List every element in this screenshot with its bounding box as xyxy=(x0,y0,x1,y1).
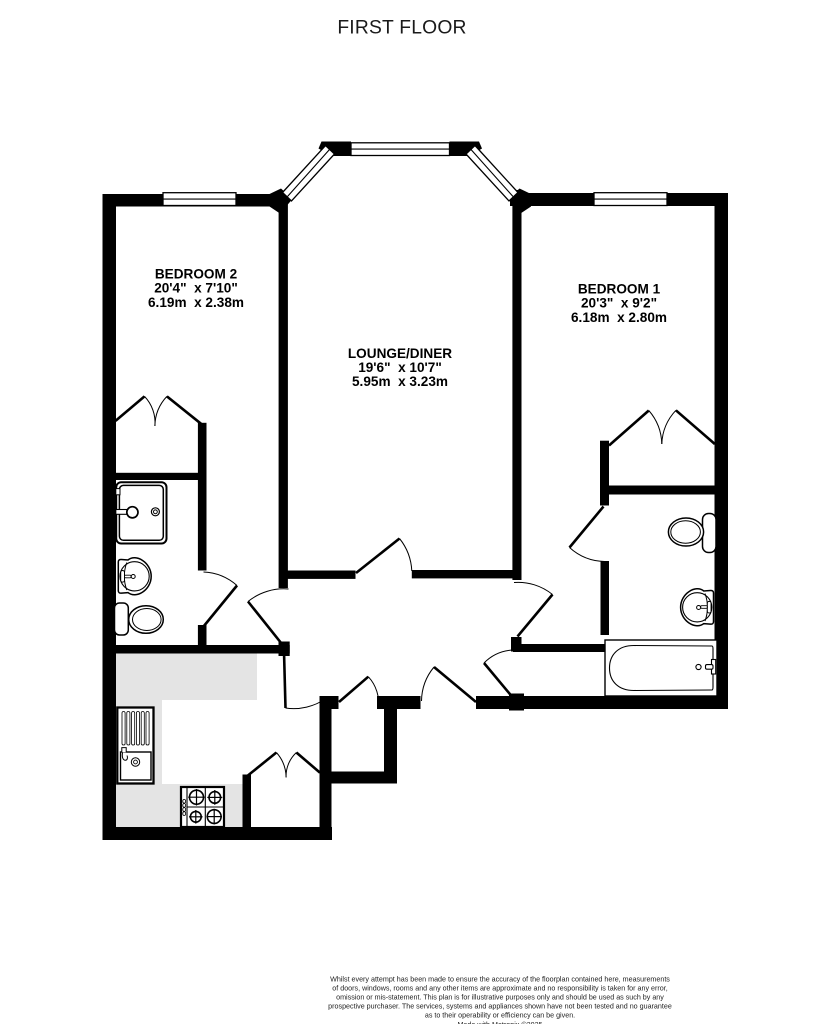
svg-text:prospective purchaser. The ser: prospective purchaser. The services, sys… xyxy=(328,1003,672,1011)
svg-text:LOUNGE/DINER: LOUNGE/DINER xyxy=(348,346,452,361)
svg-text:20'3" x 9'2": 20'3" x 9'2" xyxy=(581,296,657,311)
svg-text:BEDROOM 2: BEDROOM 2 xyxy=(155,267,238,282)
svg-text:6.19m x 2.38m: 6.19m x 2.38m xyxy=(148,295,244,310)
svg-text:FIRST FLOOR: FIRST FLOOR xyxy=(337,18,466,39)
svg-text:BEDROOM 1: BEDROOM 1 xyxy=(578,282,661,297)
svg-text:of doors, windows, rooms and a: of doors, windows, rooms and any other i… xyxy=(332,985,667,993)
svg-text:19'6" x 10'7": 19'6" x 10'7" xyxy=(358,360,442,375)
svg-text:20'4" x 7'10": 20'4" x 7'10" xyxy=(154,281,238,296)
svg-text:5.95m x 3.23m: 5.95m x 3.23m xyxy=(352,374,448,389)
svg-text:Whilst every attempt has been: Whilst every attempt has been made to en… xyxy=(330,975,670,983)
svg-text:omission or mis-statement. Thi: omission or mis-statement. This plan is … xyxy=(336,994,664,1002)
svg-text:as to their operability or eff: as to their operability or efficiency ca… xyxy=(425,1012,575,1020)
svg-text:6.18m x 2.80m: 6.18m x 2.80m xyxy=(571,310,667,325)
